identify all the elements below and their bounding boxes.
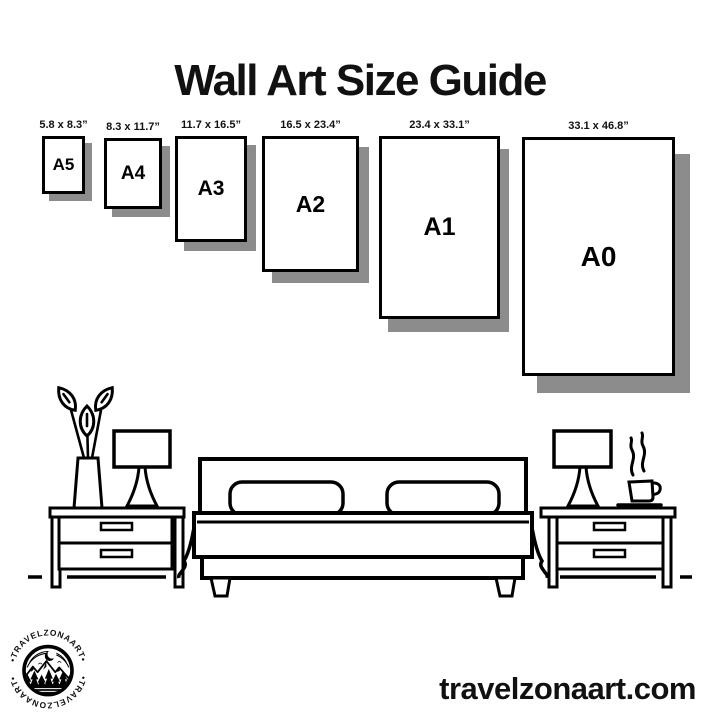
table-lamp-left-icon — [114, 431, 170, 506]
nightstand-left-icon — [50, 508, 184, 587]
bed-foot-right — [496, 578, 515, 596]
table-lamp-right-icon — [554, 431, 611, 506]
bed-icon — [179, 459, 548, 596]
bed-foot-left — [211, 578, 230, 596]
pillow-left — [230, 482, 343, 515]
nightstand-right-icon — [541, 508, 675, 587]
bedroom-illustration — [0, 0, 720, 720]
plant-vase-icon — [54, 384, 117, 508]
website-url: travelzonaart.com — [439, 671, 696, 707]
coffee-cup-icon — [618, 433, 661, 505]
pillow-right — [387, 482, 499, 515]
travelzonaart-logo: •TRAVELZONAART• •TRAVELZONAART• — [8, 628, 88, 710]
wall-art-size-guide-poster: Wall Art Size Guide 5.8 x 8.3” A5 8.3 x … — [0, 0, 720, 720]
